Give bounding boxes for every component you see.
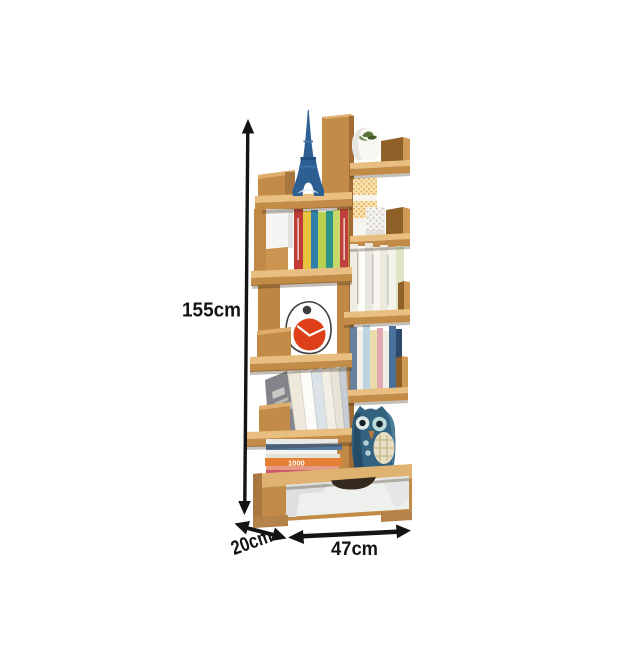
svg-text:155cm: 155cm bbox=[182, 299, 241, 322]
svg-text:1000: 1000 bbox=[288, 459, 305, 468]
svg-text:47cm: 47cm bbox=[331, 538, 378, 560]
